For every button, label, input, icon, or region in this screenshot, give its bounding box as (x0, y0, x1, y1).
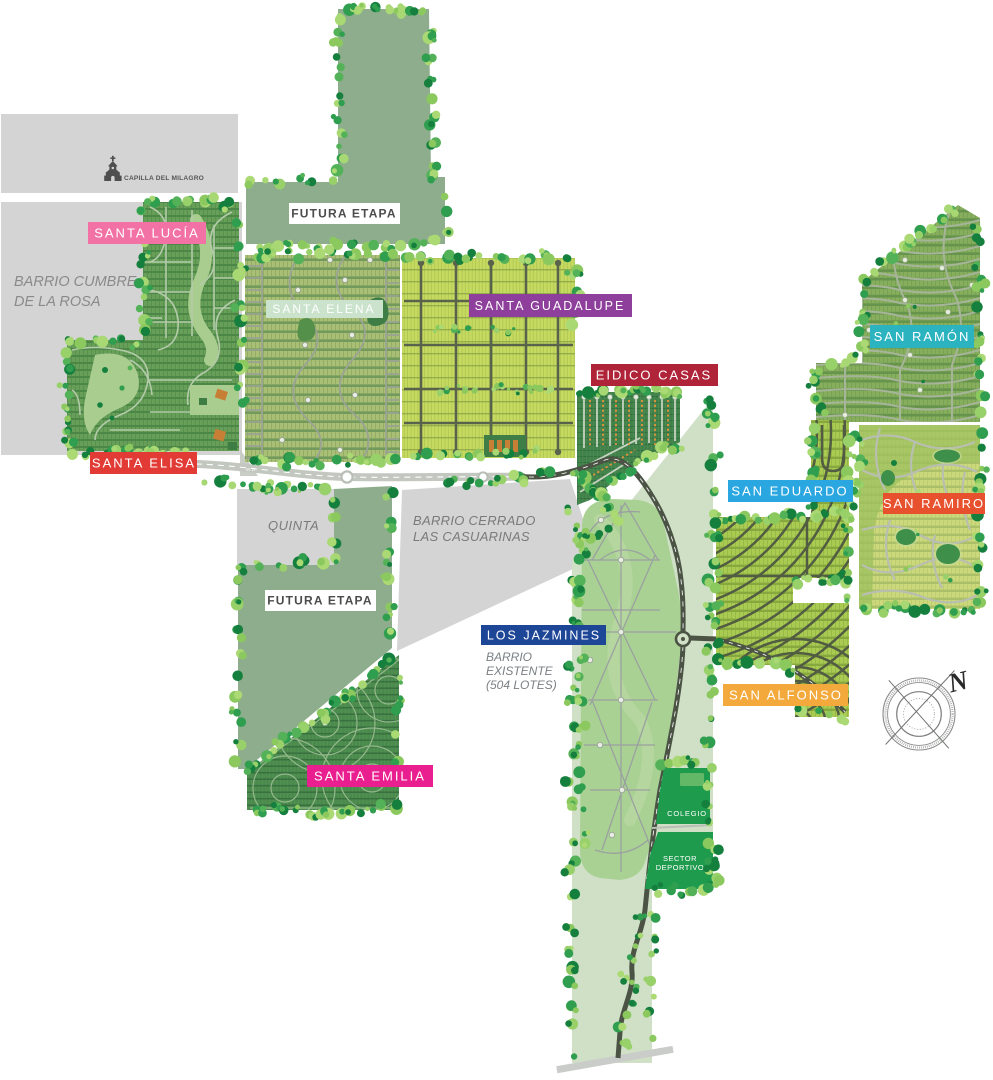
svg-text:BARRIO CERRADO: BARRIO CERRADO (413, 513, 536, 528)
svg-text:SANTA ELISA: SANTA ELISA (92, 456, 196, 471)
svg-text:BARRIO CUMBRE: BARRIO CUMBRE (14, 274, 137, 290)
svg-text:SANTA LUCÍA: SANTA LUCÍA (94, 226, 200, 241)
svg-text:SANTA ELENA: SANTA ELENA (272, 302, 375, 316)
svg-text:EIDICO CASAS: EIDICO CASAS (596, 368, 712, 383)
svg-text:LAS CASUARINAS: LAS CASUARINAS (413, 529, 530, 544)
svg-text:SANTA GUADALUPE: SANTA GUADALUPE (475, 299, 626, 313)
svg-text:SAN RAMÓN: SAN RAMÓN (874, 329, 971, 344)
svg-text:SAN RAMIRO: SAN RAMIRO (883, 496, 985, 511)
svg-text:COLEGIO: COLEGIO (667, 809, 707, 818)
svg-text:M.D.: M.D. (246, 467, 258, 472)
svg-text:(504 LOTES): (504 LOTES) (486, 678, 557, 692)
svg-text:BARRIO: BARRIO (486, 650, 532, 664)
svg-text:EXISTENTE: EXISTENTE (486, 664, 554, 678)
svg-text:SAN ALFONSO: SAN ALFONSO (729, 688, 843, 703)
svg-text:CAPILLA DEL MILAGRO: CAPILLA DEL MILAGRO (124, 175, 204, 182)
svg-text:SAN EDUARDO: SAN EDUARDO (731, 484, 848, 499)
svg-text:DE LA ROSA: DE LA ROSA (14, 294, 101, 310)
svg-text:DEPORTIVO: DEPORTIVO (656, 863, 705, 872)
svg-text:FUTURA ETAPA: FUTURA ETAPA (267, 594, 373, 608)
svg-text:LOS JAZMINES: LOS JAZMINES (487, 628, 601, 642)
svg-text:FUTURA ETAPA: FUTURA ETAPA (291, 207, 397, 221)
svg-text:SANTA EMILIA: SANTA EMILIA (314, 769, 426, 784)
svg-text:SECTOR: SECTOR (663, 854, 697, 863)
svg-text:QUINTA: QUINTA (268, 518, 319, 533)
